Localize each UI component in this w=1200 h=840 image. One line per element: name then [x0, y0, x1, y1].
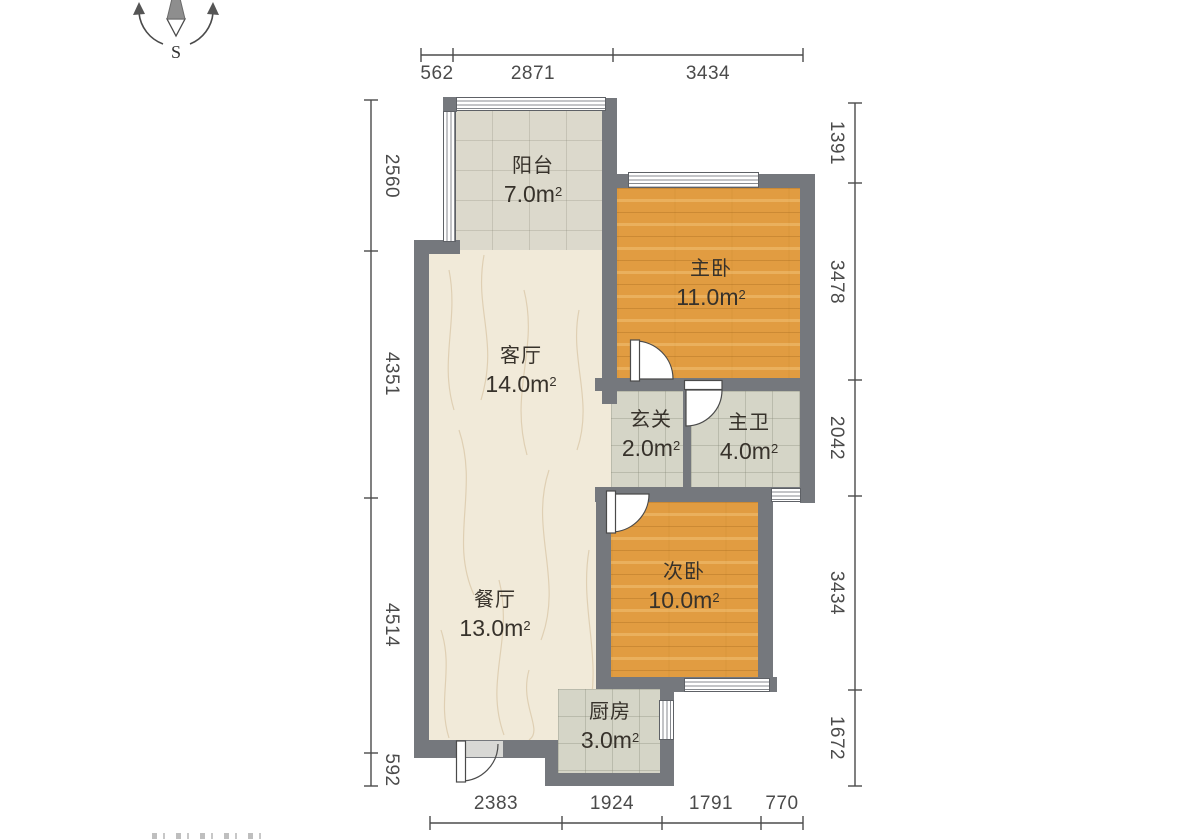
compass-left-arc — [139, 13, 163, 44]
wall-left — [414, 240, 429, 758]
room-name: 厨房 — [545, 700, 675, 724]
dim-left-4: 592 — [380, 725, 402, 815]
compass-right-arc — [190, 13, 213, 44]
master-bedroom-window — [628, 172, 759, 188]
dim-top-3: 3434 — [663, 63, 753, 85]
wall-hall-top — [595, 378, 815, 391]
dim-right-1: 1391 — [825, 98, 847, 188]
room-name: 客厅 — [456, 344, 586, 368]
dim-right-4: 3434 — [825, 548, 847, 638]
compass-needle-south — [167, 19, 185, 36]
room-label-master-bath: 主卫 4.0m2 — [684, 411, 814, 465]
dimension-chain-right — [848, 103, 862, 786]
room-area: 3.0m2 — [545, 724, 675, 754]
compass-icon: S — [130, 0, 225, 66]
dim-left-2: 4351 — [380, 329, 402, 419]
room-label-balcony: 阳台 7.0m2 — [468, 154, 598, 208]
wall-second-bedroom-right — [758, 487, 773, 692]
cropped-footer-text-fragment — [152, 833, 268, 839]
dim-bottom-4: 770 — [737, 793, 827, 815]
dim-bottom-1: 2383 — [451, 793, 541, 815]
floor-plan-canvas: S — [0, 0, 1200, 840]
dim-top-2: 2871 — [488, 63, 578, 85]
dimension-chain-bottom — [430, 816, 803, 830]
entry-threshold — [465, 741, 503, 757]
master-bath-window — [771, 488, 801, 502]
dimension-chain-left — [364, 100, 378, 786]
room-area: 4.0m2 — [684, 435, 814, 465]
dim-left-3: 4514 — [380, 580, 402, 670]
dim-bottom-2: 1924 — [567, 793, 657, 815]
floor-vein-texture — [429, 250, 611, 740]
room-name: 主卧 — [646, 257, 776, 281]
dim-right-5: 1672 — [825, 693, 847, 783]
room-name: 阳台 — [468, 154, 598, 178]
room-label-living-room: 客厅 14.0m2 — [456, 344, 586, 398]
dimension-chain-top — [421, 48, 803, 62]
room-label-dining-room: 餐厅 13.0m2 — [430, 588, 560, 642]
room-name: 次卧 — [619, 560, 749, 584]
room-area: 13.0m2 — [430, 612, 560, 642]
dim-left-1: 2560 — [380, 131, 402, 221]
dim-right-2: 3478 — [825, 237, 847, 327]
dim-right-3: 2042 — [825, 393, 847, 483]
compass-needle-north — [167, 0, 185, 19]
dim-top-1: 562 — [392, 63, 482, 85]
wall-kitchen-bottom — [545, 772, 674, 786]
room-area: 11.0m2 — [646, 281, 776, 311]
room-area: 7.0m2 — [468, 178, 598, 208]
balcony-left-window — [443, 111, 456, 242]
wall-balcony-corner — [443, 97, 457, 112]
room-label-second-bedroom: 次卧 10.0m2 — [619, 560, 749, 614]
balcony-top-window — [456, 97, 606, 111]
room-label-kitchen: 厨房 3.0m2 — [545, 700, 675, 754]
room-area: 10.0m2 — [619, 584, 749, 614]
room-area: 14.0m2 — [456, 368, 586, 398]
second-bedroom-window — [684, 678, 770, 692]
room-name: 餐厅 — [430, 588, 560, 612]
compass-arrowhead-right — [207, 2, 219, 15]
compass-arrowhead-left — [133, 2, 145, 15]
room-label-master-bedroom: 主卧 11.0m2 — [646, 257, 776, 311]
room-name: 主卫 — [684, 411, 814, 435]
compass-south-label: S — [171, 42, 181, 62]
